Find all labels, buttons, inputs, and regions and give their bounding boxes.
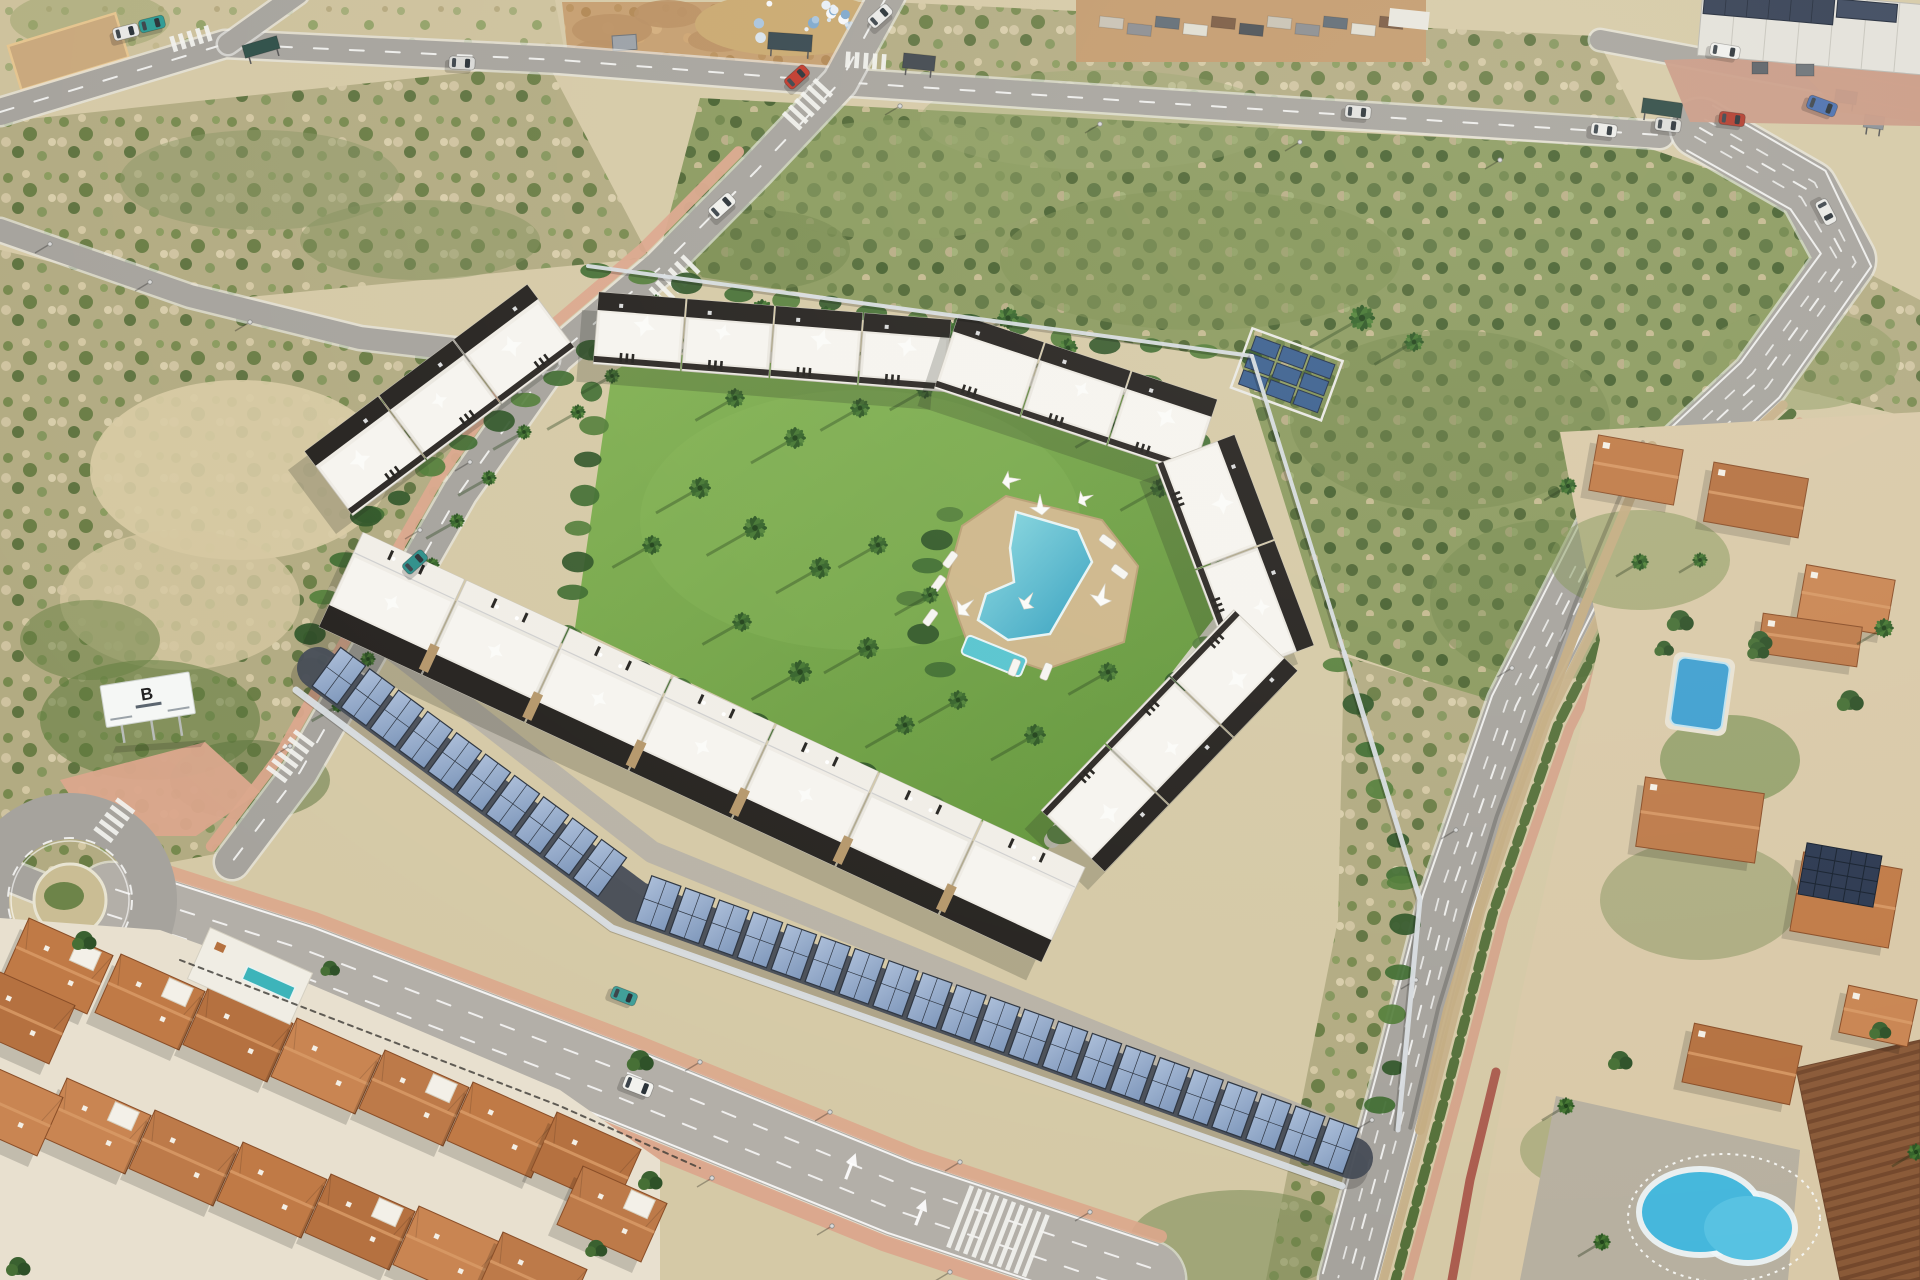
sun-glow-overlay: [0, 0, 1920, 1280]
aerial-photo: B: [0, 0, 1920, 1280]
aerial-scene-svg: B: [0, 0, 1920, 1280]
